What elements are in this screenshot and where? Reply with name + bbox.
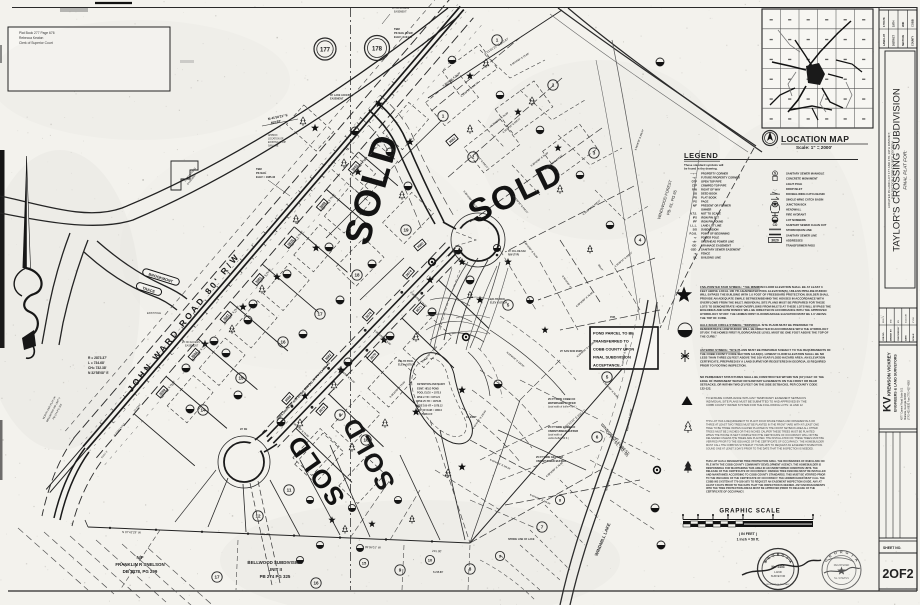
svg-text:PK NAIL IN SW: PK NAIL IN SW xyxy=(394,31,413,35)
svg-text:R: R xyxy=(777,553,780,557)
svg-text:SURVEYOR: SURVEYOR xyxy=(771,574,786,578)
svg-text:TBM: TBM xyxy=(394,27,400,31)
svg-text:14: 14 xyxy=(200,408,206,413)
svg-text:45' CUL-DE-SAC: 45' CUL-DE-SAC xyxy=(508,250,526,253)
svg-text:9: 9 xyxy=(339,413,342,418)
svg-text:ELEV =1079.34: ELEV =1079.34 xyxy=(490,302,508,305)
svg-text:V = 70,364 CF: V = 70,364 CF xyxy=(417,413,433,416)
svg-text:KREWSON VICKREY: KREWSON VICKREY xyxy=(887,352,892,396)
svg-text:DRAWN BY: DRAWN BY xyxy=(889,329,892,341)
svg-text:LAND LOT: LAND LOT xyxy=(883,33,886,46)
svg-text:L.L.L.: L.L.L. xyxy=(690,224,697,228)
svg-text:15: 15 xyxy=(238,376,244,381)
svg-text:DETENTION AND MAINT.: DETENTION AND MAINT. xyxy=(417,383,446,386)
svg-text:ACCEPTANCE.: ACCEPTANCE. xyxy=(593,363,621,368)
svg-text:FINAL PLAT FOR:: FINAL PLAT FOR: xyxy=(903,150,909,190)
svg-text:68-171: 68-171 xyxy=(883,315,885,323)
svg-text:WSE 100-YR = 1078.12: WSE 100-YR = 1078.12 xyxy=(417,405,443,408)
svg-text:GRAPHIC SCALE: GRAPHIC SCALE xyxy=(719,509,780,515)
svg-text:SHEET NO.: SHEET NO. xyxy=(883,546,901,550)
svg-text:DISTRICT: DISTRICT xyxy=(892,34,895,46)
svg-text:S/D: S/D xyxy=(693,228,697,232)
svg-text:COBB COUNTY UPON: COBB COUNTY UPON xyxy=(593,347,634,352)
svg-text:WSE 25-YR = 1076.84: WSE 25-YR = 1076.84 xyxy=(417,400,442,403)
svg-text:LEAST 3 DAYS PRIOR TO THE DATE: LEAST 3 DAYS PRIOR TO THE DATE THAT THE … xyxy=(706,483,825,487)
svg-text:10' NO ACCESS: 10' NO ACCESS xyxy=(392,7,410,10)
svg-text:25 FT WIDE COBB CO: 25 FT WIDE COBB CO xyxy=(548,397,575,401)
svg-text:5: 5 xyxy=(606,375,609,380)
svg-text:SCALE: SCALE xyxy=(912,333,915,341)
svg-text:ENGINEERS & LAND SURVEYORS: ENGINEERS & LAND SURVEYORS xyxy=(894,354,898,412)
svg-text:DATE: DATE xyxy=(905,335,908,341)
svg-text:4: 4 xyxy=(639,238,642,243)
svg-text:2ND: 2ND xyxy=(901,22,905,27)
svg-text:N 87'42'23" W: N 87'42'23" W xyxy=(122,530,141,535)
svg-text:COBB WS SYSTEM AT 770-528-1675: COBB WS SYSTEM AT 770-528-1675 TO REQUES… xyxy=(706,479,822,483)
svg-text:1: 1 xyxy=(496,38,499,43)
svg-text:R: R xyxy=(840,550,843,554)
svg-text:12: 12 xyxy=(255,514,261,519)
svg-text:04-19-98: 04-19-98 xyxy=(906,313,908,323)
svg-text:INTO THE TREE PROTECTION AREAS: INTO THE TREE PROTECTION AREAS MUST BE A… xyxy=(706,486,815,490)
svg-text:19TH: 19TH xyxy=(891,20,895,26)
svg-text:TRANSFERRED TO: TRANSFERRED TO xyxy=(593,339,629,344)
svg-text:177: 177 xyxy=(320,48,331,54)
svg-text:10: 10 xyxy=(363,438,369,443)
svg-text:25 FT WIDE COBB CO: 25 FT WIDE COBB CO xyxy=(548,425,575,429)
svg-text:17: 17 xyxy=(214,575,220,580)
svg-text:DB 3478, PG 299: DB 3478, PG 299 xyxy=(123,569,158,574)
svg-text:POOL ELEV. = 1072.5: POOL ELEV. = 1072.5 xyxy=(417,392,442,395)
svg-text:N/F: N/F xyxy=(136,555,143,560)
svg-text:25' SAN SEW ESMT: 25' SAN SEW ESMT xyxy=(560,350,583,353)
svg-text:2OF2: 2OF2 xyxy=(882,567,913,581)
svg-text:WATERSHED BUFFER: WATERSHED BUFFER xyxy=(548,401,576,405)
svg-text:JOB NO.: JOB NO. xyxy=(883,332,885,341)
svg-text:ELEV =1079.34: ELEV =1079.34 xyxy=(398,364,416,367)
svg-text:6: 6 xyxy=(596,435,599,440)
svg-text:WSE 2-YR = 1074.21: WSE 2-YR = 1074.21 xyxy=(417,396,441,399)
svg-text:CERTIFICATE OF OCCUPANCY.: CERTIFICATE OF OCCUPANCY. xyxy=(706,490,745,494)
svg-text:FRANKLIN R SNELSON: FRANKLIN R SNELSON xyxy=(115,562,164,567)
svg-text:11: 11 xyxy=(287,488,292,493)
svg-text:TOP OF DAM = 1080.0: TOP OF DAM = 1080.0 xyxy=(417,409,443,412)
svg-text:1"=50: 1"=50 xyxy=(913,317,915,323)
svg-text:ELEV =1104.27: ELEV =1104.27 xyxy=(394,35,413,39)
svg-text:POB: POB xyxy=(610,316,615,319)
svg-text:2: 2 xyxy=(472,155,475,160)
svg-text:SECTION: SECTION xyxy=(902,35,905,46)
svg-text:178: 178 xyxy=(372,47,383,53)
svg-text:RICHARD G. TICKNEY: RICHARD G. TICKNEY xyxy=(767,583,790,586)
svg-text:30' ESMT: 30' ESMT xyxy=(466,416,477,419)
svg-text:IPS: IPS xyxy=(693,216,697,220)
svg-text:No. 9 PE/PLS: No. 9 PE/PLS xyxy=(834,577,849,580)
svg-text:EASEMENT: EASEMENT xyxy=(330,98,344,101)
svg-text:ESMT. HELD POND: ESMT. HELD POND xyxy=(417,387,439,390)
svg-text:COBB: COBB xyxy=(910,19,914,27)
svg-text:N.T.S.: N.T.S. xyxy=(690,212,697,216)
svg-text:REGISTERED: REGISTERED xyxy=(834,564,850,567)
svg-text:1 inch = 50 ft.: 1 inch = 50 ft. xyxy=(737,538,760,542)
svg-text:1: 1 xyxy=(442,114,445,119)
svg-text:CHECKED BY: CHECKED BY xyxy=(898,326,900,341)
svg-text:UNDISTURBED BUFFER: UNDISTURBED BUFFER xyxy=(548,429,578,433)
svg-text:( IN FEET ): ( IN FEET ) xyxy=(739,532,758,536)
svg-text:COUNTY: COUNTY xyxy=(911,35,914,45)
svg-text:2ND SECTION COBB COUNTY, GEORG: 2ND SECTION COBB COUNTY, GEORGIA xyxy=(891,141,895,199)
svg-text:LAND: LAND xyxy=(774,570,781,574)
svg-text:IPF: IPF xyxy=(693,220,697,224)
svg-text:R/W (TYP): R/W (TYP) xyxy=(508,255,519,257)
svg-text:KV: KV xyxy=(882,396,894,412)
svg-text:POND PARCEL TO BE: POND PARCEL TO BE xyxy=(593,331,634,336)
svg-text:(770) 421-8832 Fax (770) 427-: (770) 421-8832 Fax (770) 427-4363 xyxy=(908,380,911,420)
svg-text:177/178: 177/178 xyxy=(882,17,886,27)
svg-text:EASEMENT: EASEMENT xyxy=(394,11,407,14)
svg-text:5: 5 xyxy=(507,303,510,308)
svg-text:undist.buffer=50 ft.): undist.buffer=50 ft.) xyxy=(548,437,569,440)
svg-text:20' DE: 20' DE xyxy=(240,428,248,431)
